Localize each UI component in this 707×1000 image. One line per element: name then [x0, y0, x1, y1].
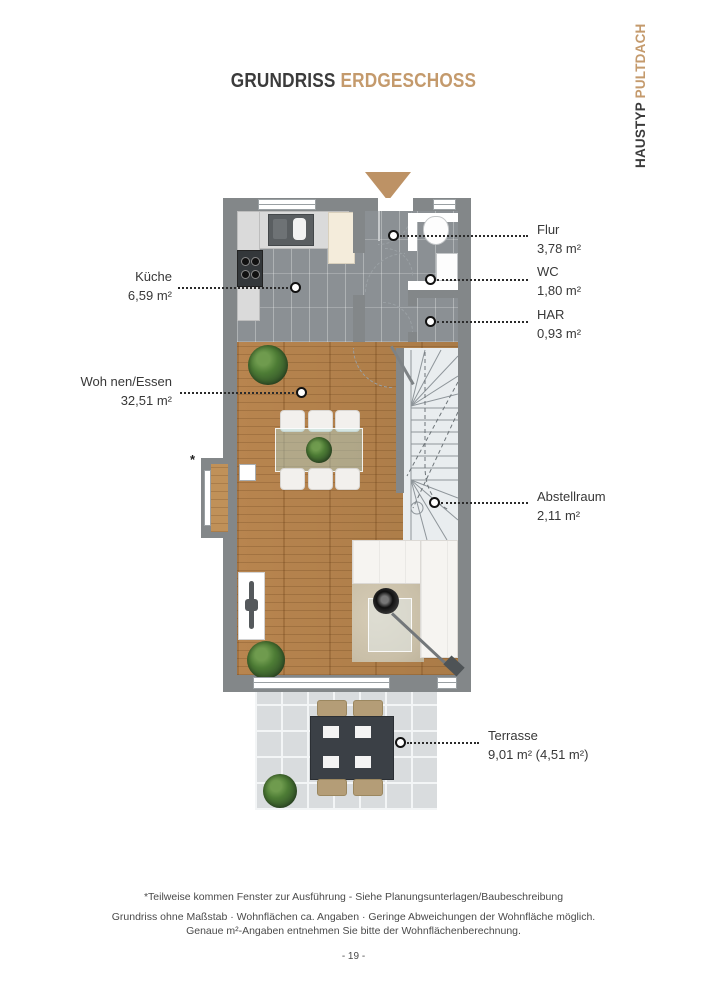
entrance-arrow-icon	[365, 172, 411, 201]
wc-basin	[436, 253, 458, 281]
page-title-accent: ERDGESCHOSS	[341, 70, 477, 92]
haustyp-banner-accent: PULTDACH	[633, 24, 648, 99]
kitchen-partition-wall	[353, 295, 365, 342]
terrace-chair	[353, 779, 383, 796]
har-wall	[408, 332, 417, 342]
sink-drainer	[293, 218, 306, 240]
dining-chair	[335, 468, 360, 490]
room-area: 1,80 m²	[537, 282, 581, 301]
leader-ring-wc	[425, 274, 436, 285]
har-wall	[408, 298, 417, 306]
burner	[241, 270, 250, 279]
room-label-wohnen: Woh nen/Essen 32,51 m²	[50, 373, 172, 411]
plant	[247, 641, 285, 679]
room-label-wc: WC 1,80 m²	[537, 263, 581, 301]
plant	[263, 774, 297, 808]
leader-ring-terrasse	[395, 737, 406, 748]
leader-line-har	[437, 321, 528, 323]
kitchen-stove	[237, 250, 263, 287]
room-area: 32,51 m²	[50, 392, 172, 411]
table-centerpiece-plant	[306, 437, 332, 463]
room-label-flur: Flur 3,78 m²	[537, 221, 581, 259]
room-label-har: HAR 0,93 m²	[537, 306, 581, 344]
sideboard	[238, 572, 265, 640]
tall-cabinet	[328, 212, 355, 264]
window-note-asterisk: *	[190, 452, 195, 467]
haustyp-banner-primary: HAUSTYP	[633, 102, 648, 168]
sofa-back-section	[352, 540, 430, 584]
room-name: Abstellraum	[537, 488, 606, 507]
placemat	[355, 726, 371, 738]
terrace-chair	[317, 779, 347, 796]
room-name: Flur	[537, 221, 581, 240]
room-label-kueche: Küche 6,59 m²	[60, 268, 172, 306]
placemat	[355, 756, 371, 768]
floor-plan	[223, 198, 471, 692]
terrace-chair	[353, 700, 383, 717]
brochure-page: { "header": { "title_primary": "GRUNDRIS…	[0, 0, 707, 1000]
haustyp-banner: HAUSTYP PULTDACH	[633, 54, 651, 168]
sofa-side-section	[420, 540, 458, 658]
leader-ring-flur	[388, 230, 399, 241]
leader-ring-wohnen	[296, 387, 307, 398]
terrace-area	[255, 692, 437, 810]
room-area: 0,93 m²	[537, 325, 581, 344]
staircase	[403, 348, 458, 540]
terrace-window-right	[437, 677, 457, 689]
bay-window-pane	[204, 470, 211, 526]
wc-har-wall	[408, 290, 458, 298]
terrace-table	[310, 716, 394, 780]
leader-ring-abstellraum	[429, 497, 440, 508]
room-area: 9,01 m² (4,51 m²)	[488, 746, 588, 765]
burner	[251, 257, 260, 266]
placemat	[323, 756, 339, 768]
room-name: Terrasse	[488, 727, 588, 746]
page-number: - 19 -	[0, 951, 707, 962]
entrance-opening	[378, 198, 413, 211]
burner	[241, 257, 250, 266]
room-name: HAR	[537, 306, 581, 325]
wc-wall-left	[408, 213, 417, 251]
room-area: 3,78 m²	[537, 240, 581, 259]
disclaimer-line1: Grundriss ohne Maßstab · Wohnflächen ca.…	[0, 911, 707, 923]
footnote: *Teilweise kommen Fenster zur Ausführung…	[0, 891, 707, 903]
wc-window	[433, 199, 456, 210]
dining-chair	[280, 468, 305, 490]
bay-window-frame	[201, 458, 226, 538]
sideboard-item	[245, 599, 258, 611]
kitchen-partition-wall	[353, 211, 365, 253]
terrace-chair	[317, 700, 347, 717]
wc-toilet	[423, 216, 449, 245]
room-label-terrasse: Terrasse 9,01 m² (4,51 m²)	[488, 727, 588, 765]
leader-line-kueche	[178, 287, 292, 289]
room-area: 6,59 m²	[60, 287, 172, 306]
wall-niche	[239, 464, 256, 481]
leader-line-wc	[437, 279, 528, 281]
page-title-primary: GRUNDRISS	[231, 70, 336, 92]
bay-window-sill	[211, 464, 228, 532]
terrace-window-left	[253, 677, 390, 689]
plant	[248, 345, 288, 385]
kitchen-window	[258, 199, 316, 210]
room-name: Küche	[60, 268, 172, 287]
leader-line-wohnen	[180, 392, 294, 394]
round-speaker	[373, 588, 399, 614]
leader-ring-har	[425, 316, 436, 327]
kitchen-sink	[268, 214, 314, 246]
placemat	[323, 726, 339, 738]
leader-ring-kueche	[290, 282, 301, 293]
burner	[251, 270, 260, 279]
disclaimer-line2: Genaue m²-Angaben entnehmen Sie bitte de…	[0, 925, 707, 937]
leader-line-flur	[400, 235, 528, 237]
room-name: Woh nen/Essen	[50, 373, 172, 392]
sink-bowl	[273, 219, 287, 239]
page-title: GRUNDRISS ERDGESCHOSS	[49, 70, 657, 93]
room-area: 2,11 m²	[537, 507, 606, 526]
leader-line-abstellraum	[441, 502, 528, 504]
dining-chair	[308, 468, 333, 490]
room-label-abstellraum: Abstellraum 2,11 m²	[537, 488, 606, 526]
room-name: WC	[537, 263, 581, 282]
leader-line-terrasse	[407, 742, 479, 744]
